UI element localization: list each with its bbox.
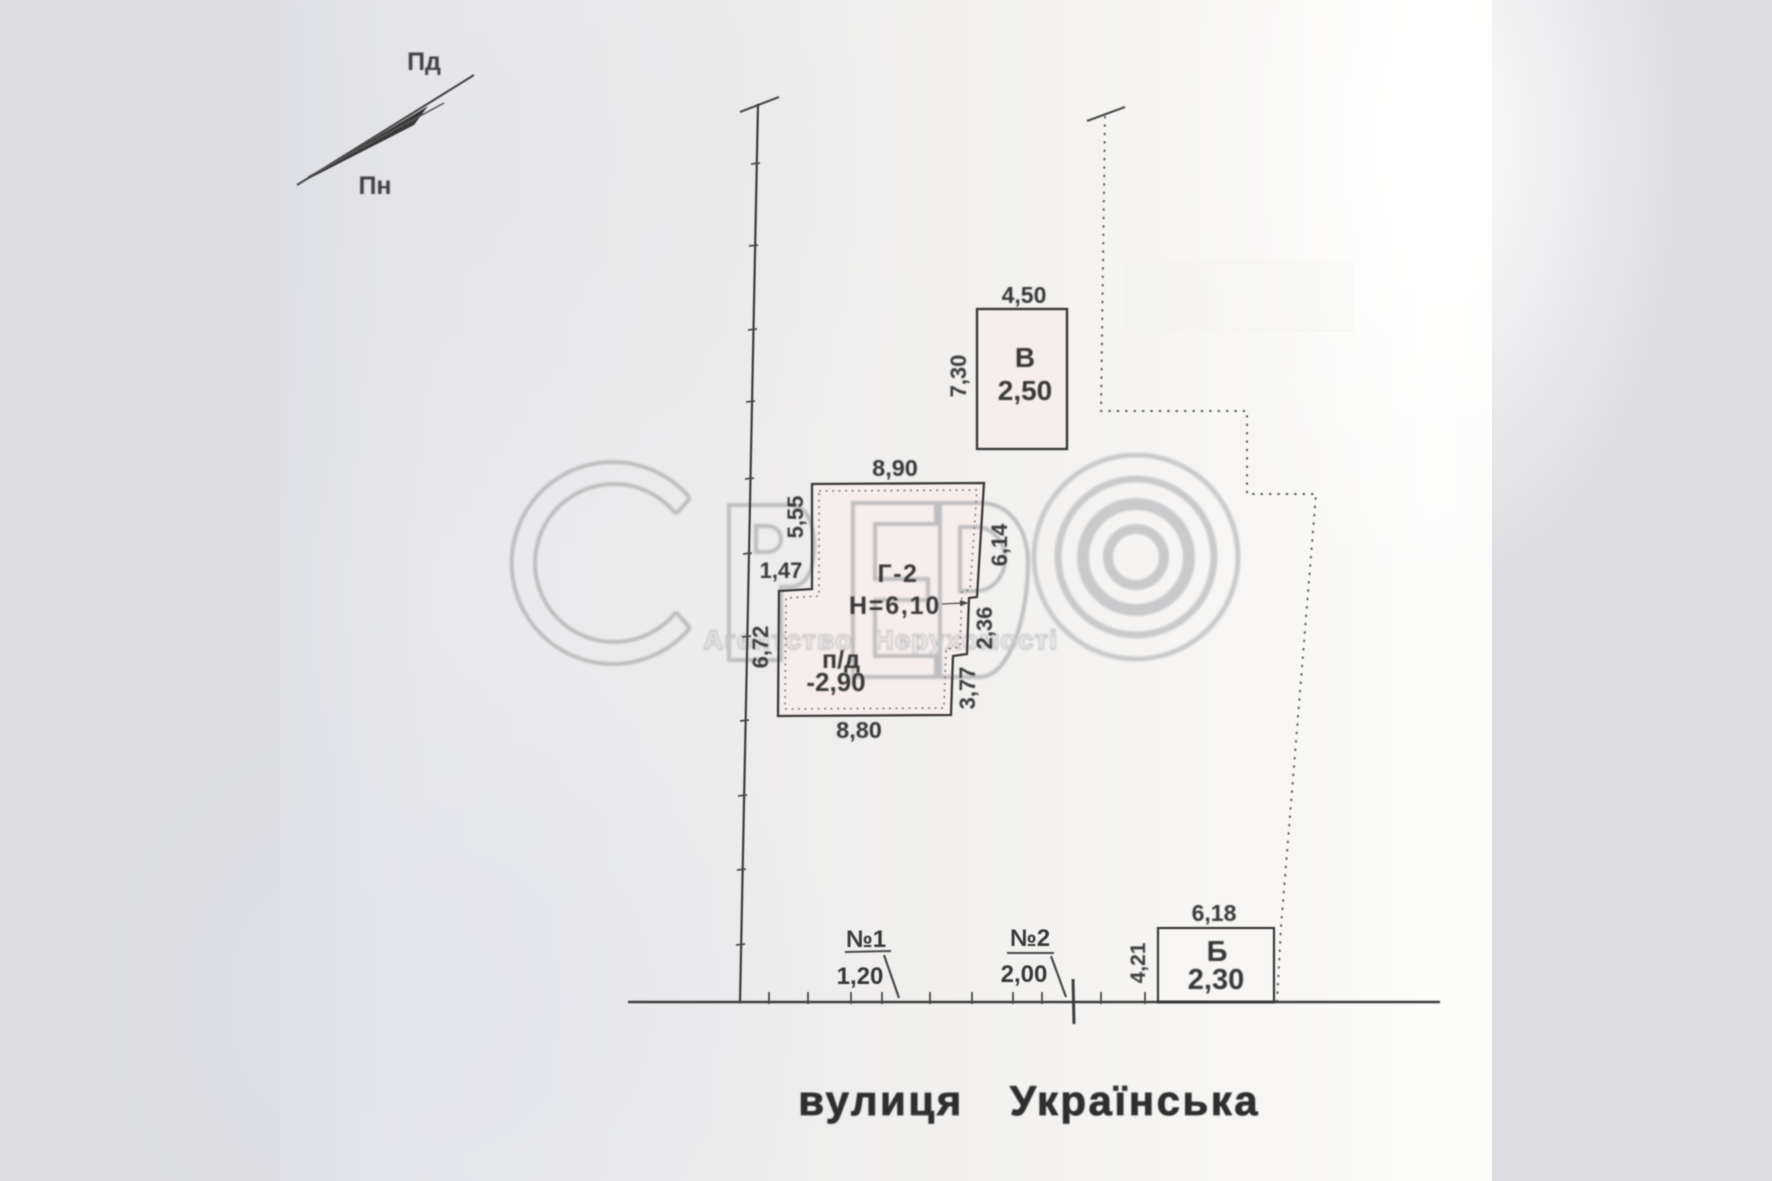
svg-text:Пн: Пн	[358, 172, 391, 200]
svg-text:Н=6,10: Н=6,10	[849, 592, 941, 620]
svg-text:8,90: 8,90	[872, 455, 918, 481]
svg-text:2,36: 2,36	[972, 607, 997, 650]
svg-text:№2: №2	[1010, 925, 1050, 952]
svg-text:4,21: 4,21	[1127, 942, 1150, 983]
svg-text:8,80: 8,80	[836, 717, 882, 743]
svg-text:6,18: 6,18	[1192, 900, 1237, 926]
svg-text:Пд: Пд	[407, 48, 441, 76]
svg-text:№1: №1	[846, 926, 886, 953]
svg-text:-2,90: -2,90	[806, 667, 865, 697]
svg-text:2,50: 2,50	[998, 375, 1053, 406]
svg-text:5,55: 5,55	[783, 496, 808, 539]
svg-text:6,72: 6,72	[748, 626, 773, 669]
svg-text:7,30: 7,30	[946, 355, 971, 398]
svg-text:6,14: 6,14	[987, 523, 1012, 567]
svg-text:2,00: 2,00	[1001, 961, 1048, 988]
svg-text:3,77: 3,77	[955, 667, 980, 710]
svg-text:Українська: Українська	[1010, 1077, 1260, 1124]
svg-text:вулиця: вулиця	[798, 1077, 963, 1124]
svg-text:1,20: 1,20	[837, 963, 884, 990]
svg-text:Г-2: Г-2	[878, 560, 919, 588]
svg-text:1,47: 1,47	[760, 558, 803, 583]
svg-text:2,30: 2,30	[1188, 964, 1244, 996]
svg-text:4,50: 4,50	[1002, 282, 1047, 308]
svg-text:В: В	[1015, 342, 1035, 373]
